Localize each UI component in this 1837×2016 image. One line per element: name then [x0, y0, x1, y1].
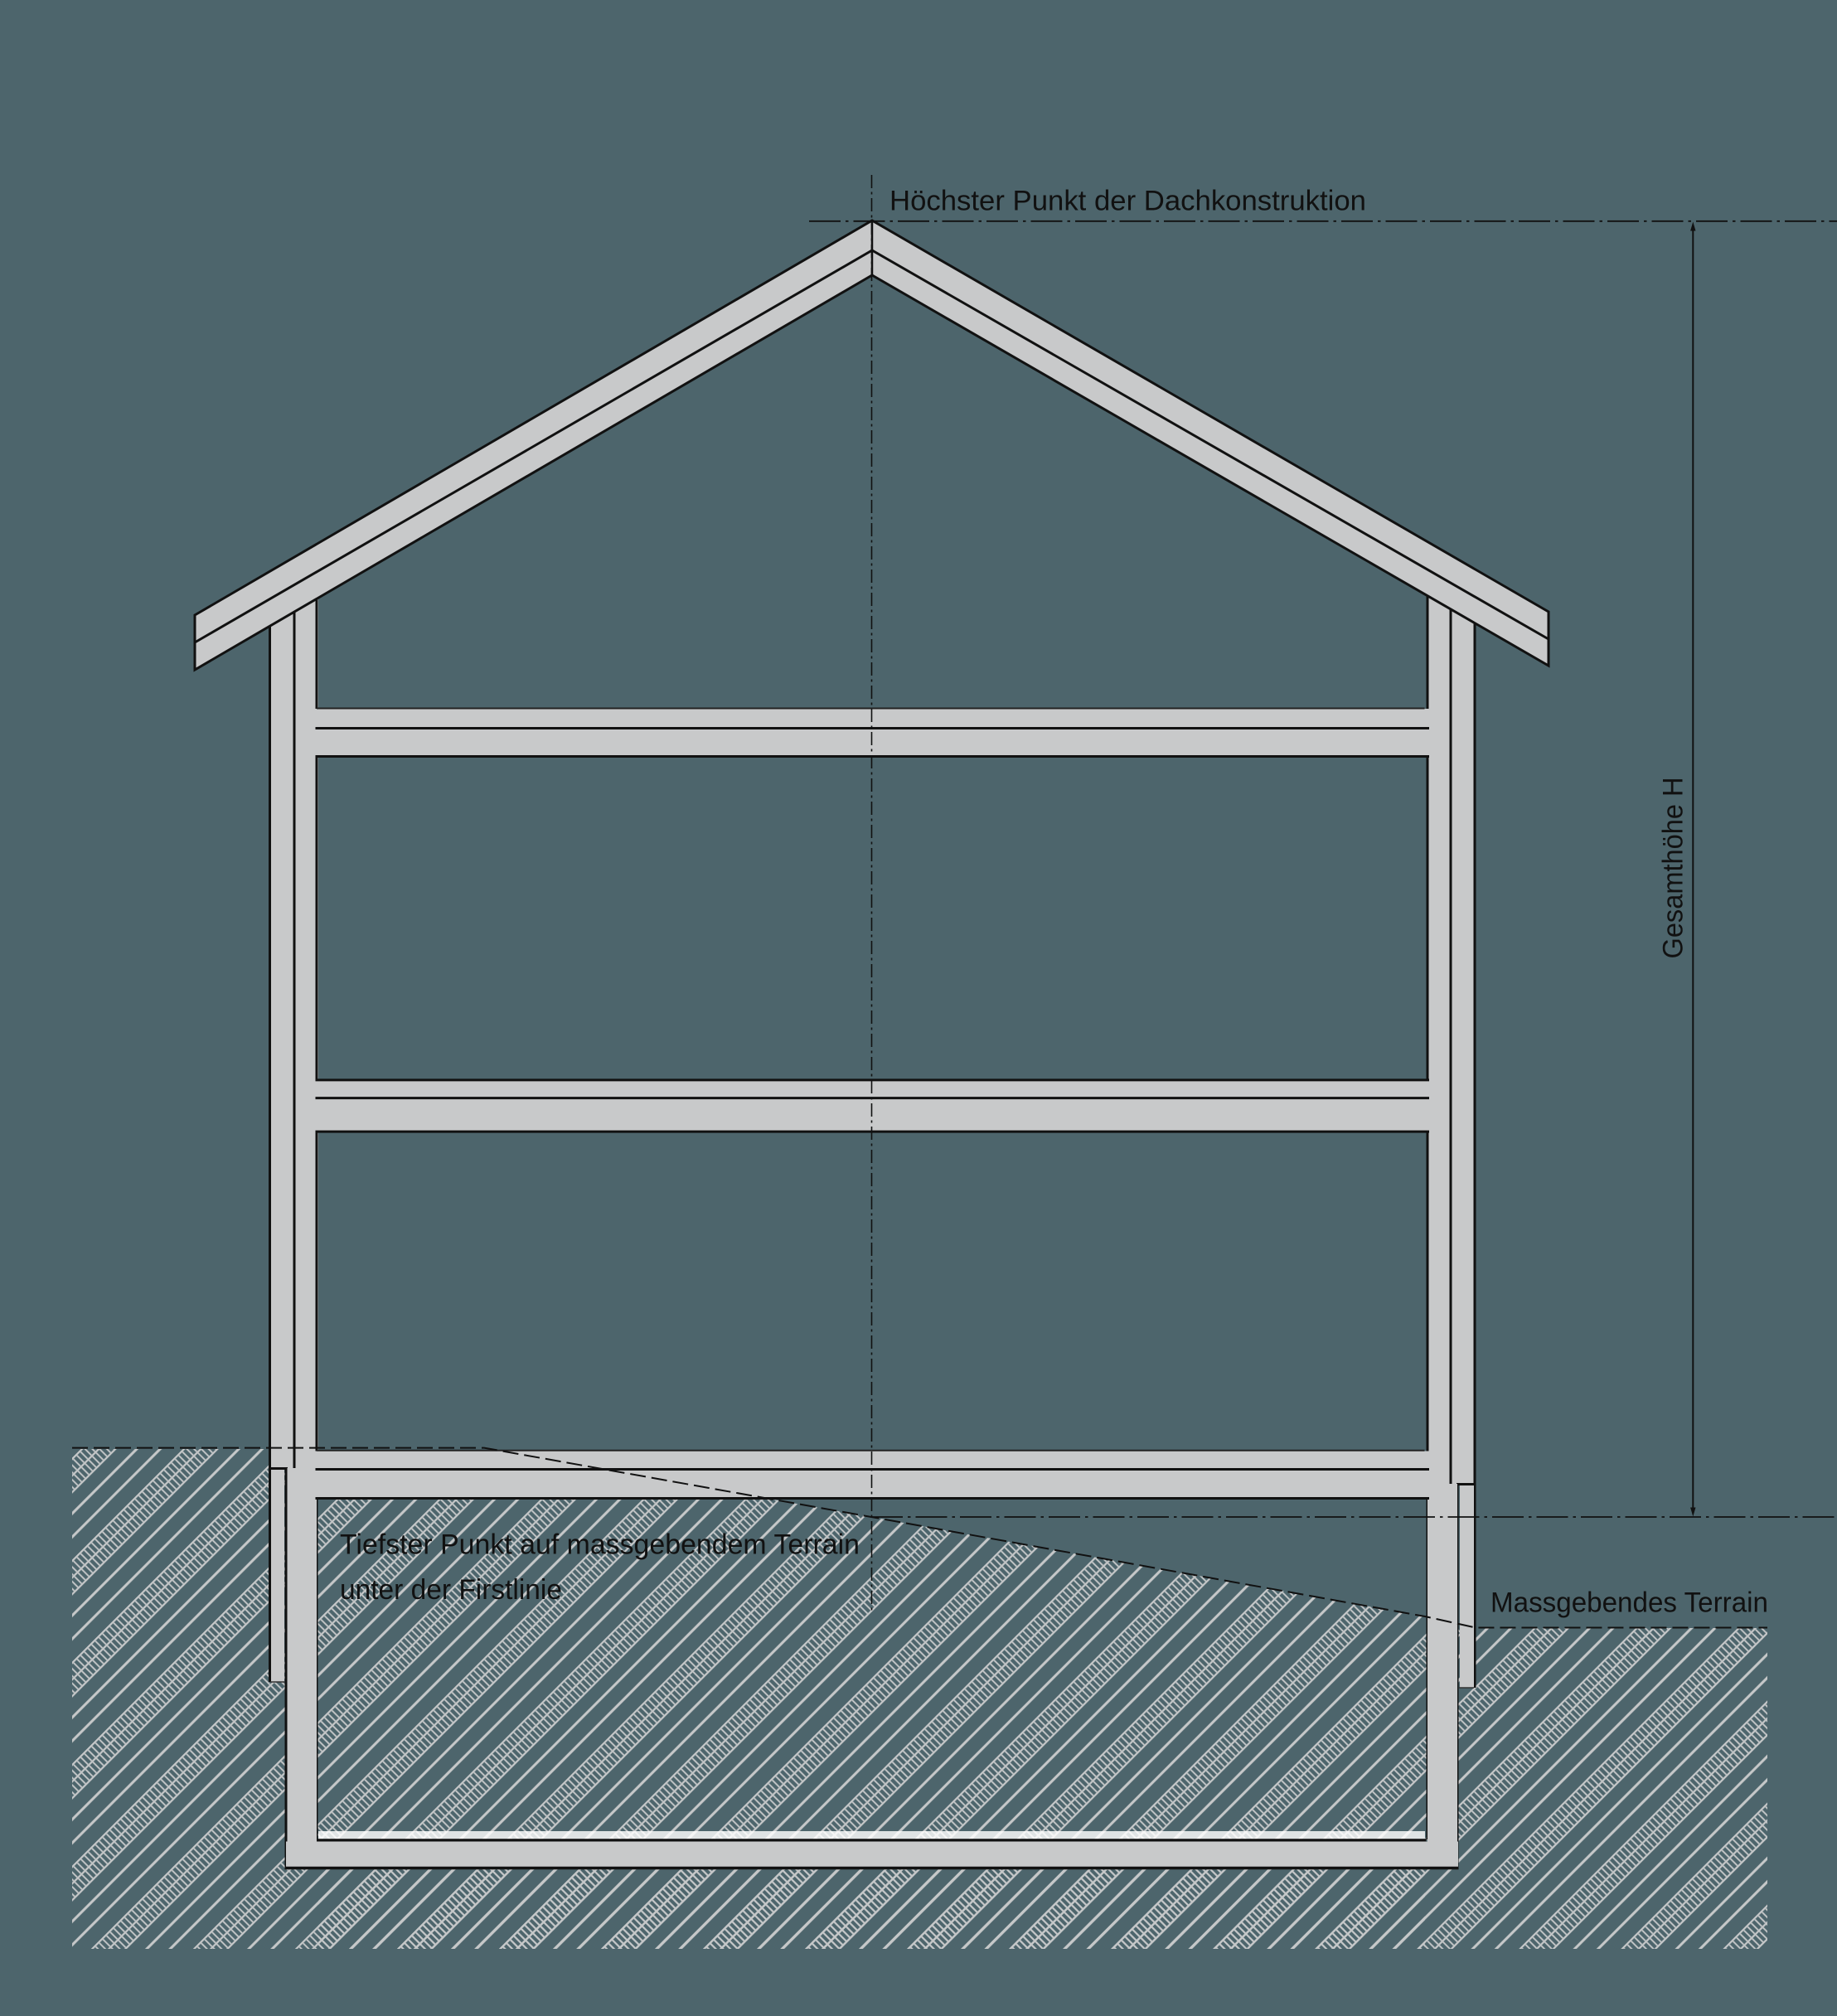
svg-text:unter der Firstlinie: unter der Firstlinie — [340, 1574, 562, 1606]
svg-text:Höchster Punkt der Dachkonstru: Höchster Punkt der Dachkonstruktion — [889, 186, 1366, 217]
svg-text:Tiefster Punkt auf massgebende: Tiefster Punkt auf massgebendem Terrain — [340, 1529, 860, 1561]
svg-text:Gesamthöhe H: Gesamthöhe H — [1658, 778, 1689, 959]
svg-text:Massgebendes Terrain: Massgebendes Terrain — [1490, 1587, 1768, 1619]
